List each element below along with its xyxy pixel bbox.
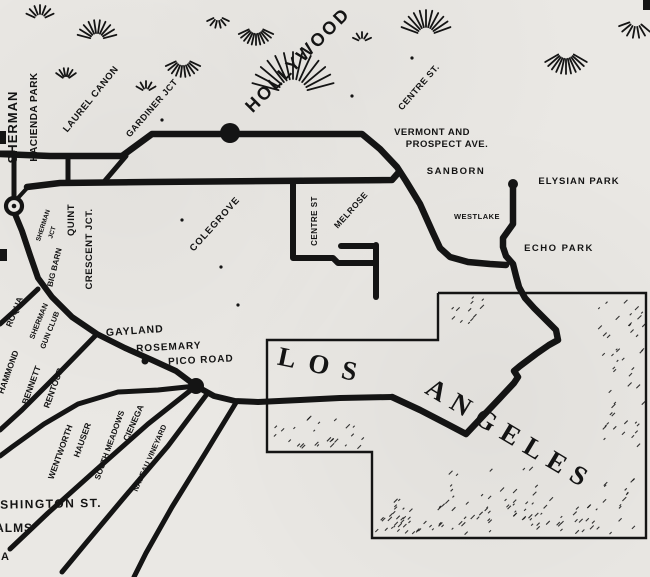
stipple-shading [602,353,605,356]
stipple-shading [523,517,525,519]
stipple-shading [524,509,526,511]
hachure-mark [149,87,155,91]
stipple-shading [452,316,455,319]
stipple-shading [604,438,606,440]
stipple-shading [471,515,475,519]
stipple-shading [590,526,594,530]
stipple-shading [610,532,612,534]
stipple-shading [616,349,618,351]
stipple-shading [480,305,484,309]
hachure-mark [181,66,182,77]
stipple-shading [465,532,468,535]
stipple-shading [389,513,392,516]
stipple-shading [607,422,609,424]
hachure-mark [223,18,229,21]
stipple-shading [388,517,392,521]
label-elysian-park: ELYSIAN PARK [538,176,619,187]
label-westlake: WESTLAKE [454,212,500,221]
stipple-shading [610,412,613,415]
hachure-mark [67,68,69,76]
stipple-shading [544,505,547,508]
stipple-shading [346,424,350,428]
stipple-shading [513,500,516,503]
stipple-shading [513,513,517,517]
stipple-shading [317,444,319,446]
stipple-shading [432,528,434,530]
stipple-shading [459,521,463,525]
stipple-shading [549,497,553,501]
hachure-mark [64,68,66,76]
stipple-shading [635,422,637,424]
stipple-shading [620,504,622,506]
stipple-shading [334,419,336,421]
stipple-shading [575,519,578,522]
stipple-shading [429,525,431,527]
label-pico-road: PICO ROAD [168,353,234,367]
stipple-shading [456,307,459,310]
label-big-barn: BIG BARN [45,247,63,288]
stipple-shading [619,506,621,508]
stipple-shading [403,508,405,510]
stipple-shading [481,494,483,496]
stipple-shading [464,517,466,519]
stipple-shading [351,434,354,437]
ink-speck [410,56,413,59]
label-colegrove: COLEGROVE [188,195,243,254]
stipple-shading [408,521,410,523]
edge-mark [643,0,650,10]
stipple-shading [606,302,608,304]
stipple-shading [401,517,404,520]
stipple-shading [452,507,456,511]
hachure-mark [148,82,152,88]
stipple-shading [452,496,454,498]
stipple-shading [597,527,600,530]
stipple-shading [412,531,415,534]
stipple-shading [515,511,517,513]
stipple-shading [637,444,640,447]
hachure-mark [619,22,629,26]
hachure-mark [353,38,358,41]
stipple-shading [530,518,532,520]
station-pico-road [188,378,204,394]
rail-colegrove-line [27,172,399,187]
stipple-shading [468,322,470,324]
stipple-shading [394,526,396,528]
label-roqua: ROQUA [4,295,25,328]
hachure-mark [637,27,639,38]
hachure-mark [364,34,367,39]
stipple-shading [531,524,533,526]
stipple-shading [397,529,399,531]
stipple-shading [596,509,598,511]
stipple-shading [635,306,639,310]
stipple-shading [281,428,284,431]
label-los: LOS [275,341,372,390]
stipple-shading [637,315,641,319]
ink-speck [236,303,239,306]
stipple-shading [575,530,579,534]
stipple-shading [505,499,507,501]
rail-branch-southwest-3 [134,401,237,577]
stipple-shading [560,529,562,531]
stipple-shading [394,499,398,503]
stipple-shading [607,335,610,338]
label-cut-label-a: A [1,551,9,563]
stipple-shading [532,503,534,505]
hachure-mark [136,87,142,91]
stipple-shading [375,529,378,532]
rail-connector-diagonal [103,156,126,183]
stipple-shading [468,308,471,311]
stipple-shading [456,474,458,476]
stipple-shading [330,443,334,447]
hachure-mark [94,20,96,33]
stipple-shading [405,530,408,533]
stipple-shading [629,373,632,376]
label-melrose: MELROSE [332,190,370,231]
stipple-shading [636,335,638,337]
stipple-shading [391,527,393,529]
label-wentworth: WENTWORTH [46,423,75,480]
label-sanborn: SANBORN [427,166,486,177]
stipple-shading [424,521,427,524]
stipple-shading [625,488,627,490]
stipple-shading [573,512,577,516]
hachure-mark [141,82,145,88]
label-gardiner-jct: GARDINER JCT [124,77,180,139]
stipple-shading [445,500,449,504]
stipple-shading [609,390,612,393]
stipple-shading [362,437,364,439]
label-prospect-ave: PROSPECT AVE. [406,139,489,150]
hachure-mark [184,66,185,77]
stipple-shading [622,358,624,360]
stipple-shading [408,517,411,520]
label-hacienda-park: HACIENDA PARK [29,72,40,162]
label-sherman-jct-2: JCT [47,226,57,240]
stipple-shading [394,522,397,525]
stipple-shading [477,517,480,520]
stipple-shading [614,402,616,404]
stipple-shading [622,497,626,501]
hachure-mark [42,6,45,14]
rail-hollywood-main-line [0,134,506,265]
stipple-shading [297,444,300,447]
stipple-shading [318,422,320,424]
hachure-mark [207,18,213,21]
label-vermont-and: VERMONT AND [394,127,470,138]
stipple-shading [274,434,276,436]
stipple-shading [466,502,469,505]
stipple-shading [472,297,474,299]
stipple-shading [488,519,490,521]
stipple-shading [334,439,338,443]
stipple-shading [635,431,638,434]
ink-speck [180,218,183,221]
stipple-shading [624,421,627,424]
stipple-shading [479,512,482,515]
stipple-shading [398,499,400,501]
railway-map-canvas: SHERMANHACIENDA PARKLAUREL CANONGARDINER… [0,0,650,577]
stipple-shading [275,426,277,428]
stipple-shading [490,469,493,472]
ink-speck [219,265,222,268]
stipple-shading [398,523,402,527]
stipple-shading [533,492,537,496]
stipple-shading [561,516,563,518]
stipple-shading [632,526,635,529]
stipple-shading [452,307,454,309]
stipple-shading [613,369,616,372]
stipple-shading [500,488,504,492]
stipple-shading [403,524,406,527]
hachure-mark [219,21,221,28]
stipple-shading [598,326,602,330]
stipple-shading [535,485,538,488]
hachure-mark [357,34,360,39]
stipple-shading [605,425,607,427]
stipple-shading [452,528,454,530]
ink-speck [160,118,163,121]
hachure-mark [633,27,635,38]
stipple-shading [461,522,465,526]
stipple-shading [513,489,517,493]
station-hollywood [220,123,240,143]
stipple-shading [598,307,600,309]
stipple-shading [586,518,589,521]
stipple-shading [603,333,607,337]
stipple-shading [470,318,473,321]
hachure-mark [221,20,225,25]
stipple-shading [592,521,595,524]
label-gayland: GAYLAND [105,323,164,339]
label-hammond: HAMMOND [0,349,21,395]
ink-speck [350,94,353,97]
stipple-shading [450,485,452,487]
stipple-shading [630,313,632,315]
stipple-shading [537,526,540,529]
label-washington-st: WASHINGTON ST. [0,496,102,512]
stipple-shading [535,513,538,516]
stipple-shading [632,435,634,437]
station-sherman-terminal-center [12,204,17,209]
label-centre-st-upper: CENTRE ST. [396,62,441,112]
stipple-shading [396,516,399,519]
stipple-shading [546,521,550,525]
stipple-shading [529,467,533,471]
stipple-shading [619,518,622,521]
stipple-shading [612,404,616,408]
stipple-shading [541,513,543,515]
label-centre-st-vertical: CENTRE ST [310,196,319,246]
stipple-shading [308,416,312,420]
stipple-shading [632,479,634,481]
stipple-shading [642,401,645,404]
hachure-mark [366,38,371,41]
stipple-shading [616,316,620,320]
edge-mark [0,249,7,261]
stipple-shading [528,514,532,518]
stipple-shading [613,426,616,429]
stipple-shading [485,508,488,511]
stipple-shading [582,530,584,532]
hachure-mark [215,21,217,28]
stipple-shading [460,320,462,322]
stipple-shading [561,521,563,523]
stipple-shading [506,505,509,508]
hachure-mark [34,6,37,14]
rail-branch-west-2 [0,334,97,430]
la-railway-map: SHERMANHACIENDA PARKLAUREL CANONGARDINER… [0,0,650,577]
stipple-shading [630,330,633,333]
stipple-shading [471,301,474,304]
stipple-shading [613,367,615,369]
stipple-shading [449,471,453,475]
stipple-shading [622,432,625,435]
hachure-mark [210,20,214,25]
stipple-shading [473,314,476,317]
label-palms: PALMS [0,521,33,535]
stipple-shading [624,300,628,304]
hachure-mark [98,20,100,33]
stipple-shading [409,509,412,512]
label-crescent-jct: CRESCENT JCT. [84,209,95,290]
stipple-shading [526,502,528,504]
stipple-shading [637,424,639,426]
stipple-shading [513,504,515,506]
stipple-shading [288,440,290,442]
stipple-shading [588,505,591,508]
label-rosemary: ROSEMARY [136,340,202,354]
stipple-shading [442,504,445,507]
stipple-shading [327,437,331,441]
stipple-shading [451,489,453,491]
station-rosemary [142,358,149,365]
stipple-shading [636,385,640,389]
stipple-shading [579,519,583,523]
stipple-shading [482,299,484,301]
stipple-shading [611,354,613,356]
stipple-shading [628,382,632,386]
label-hollywood: HOLLYWOOD [241,3,354,116]
stipple-shading [293,427,295,429]
stipple-shading [488,511,490,513]
label-echo-park: ECHO PARK [524,243,594,254]
stipple-shading [385,528,388,531]
stipple-shading [313,430,315,432]
label-sherman-vertical: SHERMAN [5,91,20,164]
stipple-shading [617,360,619,362]
stipple-shading [576,507,579,510]
stipple-shading [442,525,444,527]
stipple-shading [488,496,491,499]
stipple-shading [353,426,355,428]
stipple-shading [641,312,643,314]
stipple-shading [537,523,540,526]
stipple-shading [357,445,361,449]
station-elysian-park [508,179,518,189]
stipple-shading [632,367,634,369]
stipple-shading [489,530,491,532]
stipple-shading [523,468,525,470]
stipple-shading [345,445,347,447]
label-quint: QUINT [66,204,77,236]
stipple-shading [393,511,396,514]
stipple-shading [603,499,606,502]
